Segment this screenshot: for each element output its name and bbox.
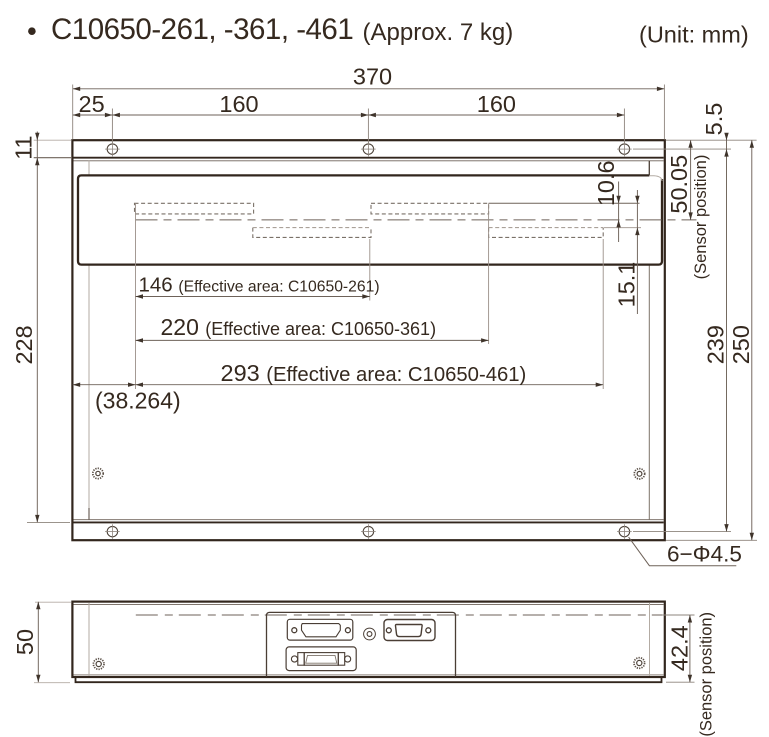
svg-text:10.6: 10.6 — [593, 160, 619, 206]
svg-text:5.5: 5.5 — [701, 103, 727, 136]
svg-text:239: 239 — [703, 325, 729, 364]
svg-text:228: 228 — [11, 325, 37, 364]
svg-text:160: 160 — [477, 91, 516, 117]
svg-text:(Sensor position): (Sensor position) — [698, 612, 716, 737]
svg-text:(Approx. 7 kg): (Approx. 7 kg) — [363, 19, 514, 46]
svg-text:15.1: 15.1 — [614, 262, 640, 308]
svg-text:(38.264): (38.264) — [95, 388, 181, 414]
svg-text:50: 50 — [12, 629, 38, 655]
svg-text:6−Φ4.5: 6−Φ4.5 — [667, 542, 742, 567]
svg-text:(Sensor position): (Sensor position) — [692, 155, 710, 280]
svg-text:11: 11 — [11, 135, 37, 159]
svg-text:160: 160 — [219, 91, 258, 117]
svg-text:50.05: 50.05 — [666, 155, 692, 214]
svg-text:42.4: 42.4 — [667, 625, 693, 671]
svg-text:C10650-261, -361, -461: C10650-261, -361, -461 — [51, 13, 353, 46]
svg-text:370: 370 — [353, 64, 392, 90]
svg-text:25: 25 — [79, 91, 105, 117]
svg-text:250: 250 — [728, 325, 754, 364]
svg-text:(Unit: mm): (Unit: mm) — [639, 22, 749, 48]
svg-text:293 (Effective area: C10650-46: 293 (Effective area: C10650-461) — [221, 360, 527, 386]
